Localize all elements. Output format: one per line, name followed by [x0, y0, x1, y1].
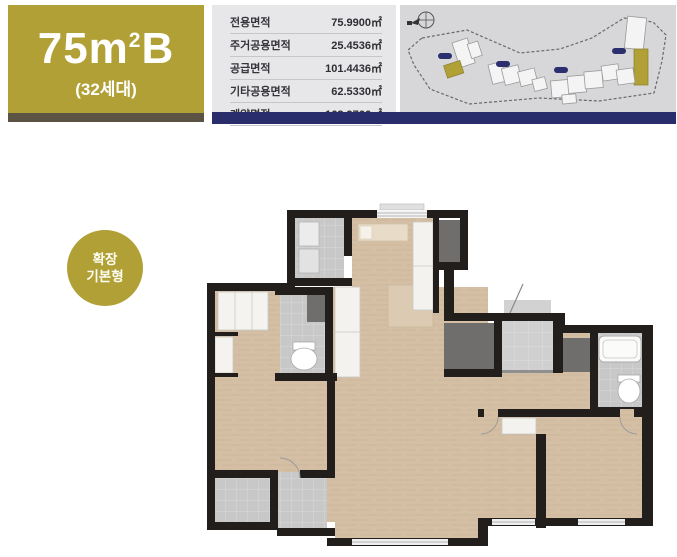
closet-small-left [215, 337, 233, 373]
unit-card-accent-bar [8, 113, 204, 122]
area-value: 75.9900㎡ [331, 14, 382, 30]
building-marker [554, 67, 568, 73]
header-accent-bar [212, 112, 676, 124]
toilet-left-icon [291, 348, 317, 370]
building-footprint [488, 52, 547, 100]
expansion-badge-line2: 기본형 [86, 268, 123, 285]
area-table: 전용면적 75.9900㎡ 주거공용면적 25.4536㎡ 공급면적 101.4… [212, 5, 396, 112]
entrance-tiles [502, 313, 553, 372]
balcony-left-tiles [214, 478, 270, 522]
expansion-badge-line1: 확장 [93, 251, 118, 268]
unit-title-suffix: B [141, 24, 174, 73]
pillow-icon [360, 226, 372, 239]
area-table-row: 주거공용면적 25.4536㎡ [230, 34, 382, 57]
area-table-row: 전용면적 75.9900㎡ [230, 11, 382, 34]
highlighted-building-wing [444, 60, 464, 78]
unit-type-title: 75m2B [38, 19, 175, 71]
site-plan [400, 5, 676, 112]
unit-type-card: 75m2B (32세대) [8, 5, 204, 113]
building-footprint [550, 70, 604, 104]
building-marker [612, 48, 626, 54]
entrance-step-line [502, 370, 553, 373]
unit-household-count: (32세대) [75, 75, 137, 100]
closet-row-left [218, 292, 268, 330]
toilet-right-icon [618, 379, 640, 403]
area-table-row: 기타공용면적 62.5330㎡ [230, 80, 382, 103]
closet-mid-room [502, 418, 536, 434]
window-top [377, 210, 427, 218]
building-marker [438, 53, 452, 59]
dryer-icon [299, 249, 319, 273]
expansion-badge: 확장 기본형 [67, 230, 143, 306]
washer-icon [299, 222, 319, 246]
unit-title-sup: 2 [129, 29, 142, 52]
site-plan-drawing [400, 5, 676, 112]
unit-title-main: 75m [38, 24, 129, 73]
area-table-row: 공급면적 101.4436㎡ [230, 57, 382, 80]
floor-plan [192, 192, 662, 557]
building-marker [496, 61, 510, 67]
highlighted-building-wing [634, 49, 648, 85]
page: 75m2B (32세대) 전용면적 75.9900㎡ 주거공용면적 25.453… [0, 0, 677, 557]
compass-icon [407, 12, 434, 28]
alcove-left [444, 323, 494, 369]
window-top-sill [380, 204, 424, 210]
area-label: 주거공용면적 [230, 37, 291, 53]
area-value: 101.4436㎡ [325, 60, 382, 76]
area-value: 62.5330㎡ [331, 83, 382, 99]
area-label: 기타공용면적 [230, 83, 291, 99]
area-label: 전용면적 [230, 14, 270, 30]
area-value: 25.4536㎡ [331, 37, 382, 53]
duct-shaft [439, 220, 460, 264]
area-label: 공급면적 [230, 60, 270, 76]
utility-room2-tiles [278, 472, 327, 528]
